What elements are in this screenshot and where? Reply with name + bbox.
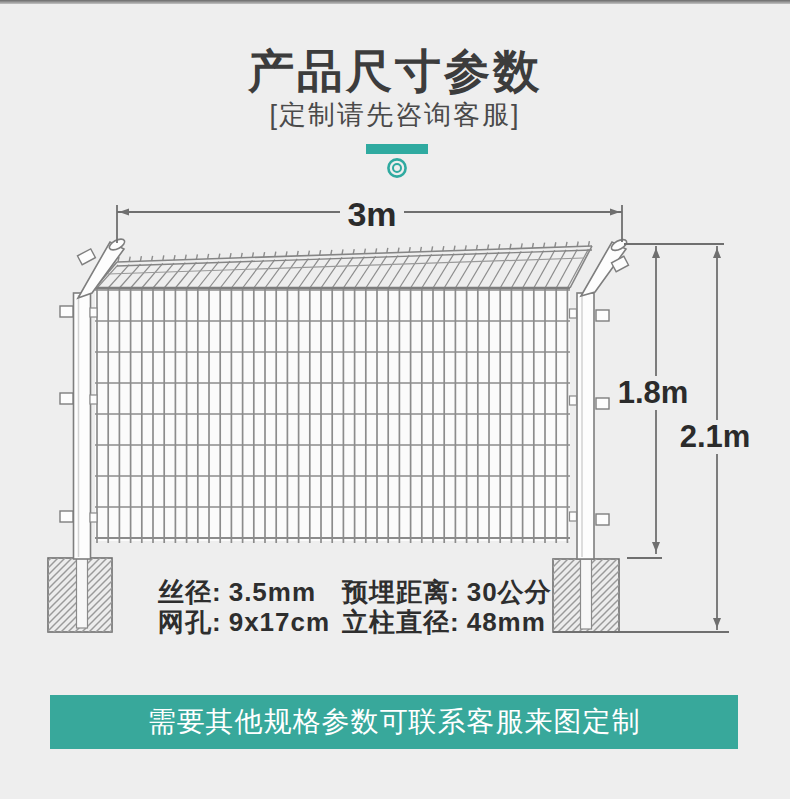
post-embed-left — [77, 558, 88, 628]
dimension-mesh-height-label: 1.8m — [610, 376, 696, 410]
spec-value: 48mm — [467, 607, 546, 637]
spec-label: 预埋距离: — [342, 577, 460, 607]
spec-label: 丝径: — [158, 577, 222, 607]
ring-icon — [384, 155, 410, 181]
page-subtitle: [定制请先咨询客服] — [0, 99, 790, 133]
accent-bar — [366, 144, 428, 154]
post-bracket — [77, 249, 95, 265]
top-divider — [0, 0, 790, 4]
product-spec-page: 产品尺寸参数 [定制请先咨询客服] — [0, 0, 790, 799]
spec-post-diameter: 立柱直径:48mm — [342, 605, 546, 640]
dimension-width-label: 3m — [340, 196, 404, 233]
custom-service-banner: 需要其他规格参数可联系客服来图定制 — [50, 695, 738, 749]
spec-value: 30公分 — [467, 577, 552, 607]
dimension-total-height-label: 2.1m — [672, 420, 758, 454]
post-embed-right — [581, 559, 592, 629]
banner-text: 需要其他规格参数可联系客服来图定制 — [148, 703, 641, 741]
spec-value: 3.5mm — [229, 577, 316, 607]
spec-label: 立柱直径: — [342, 607, 460, 637]
spec-value: 9x17cm — [229, 607, 330, 637]
page-title: 产品尺寸参数 — [0, 44, 790, 99]
spec-mesh-opening: 网孔:9x17cm — [158, 605, 330, 640]
spec-label: 网孔: — [158, 607, 222, 637]
